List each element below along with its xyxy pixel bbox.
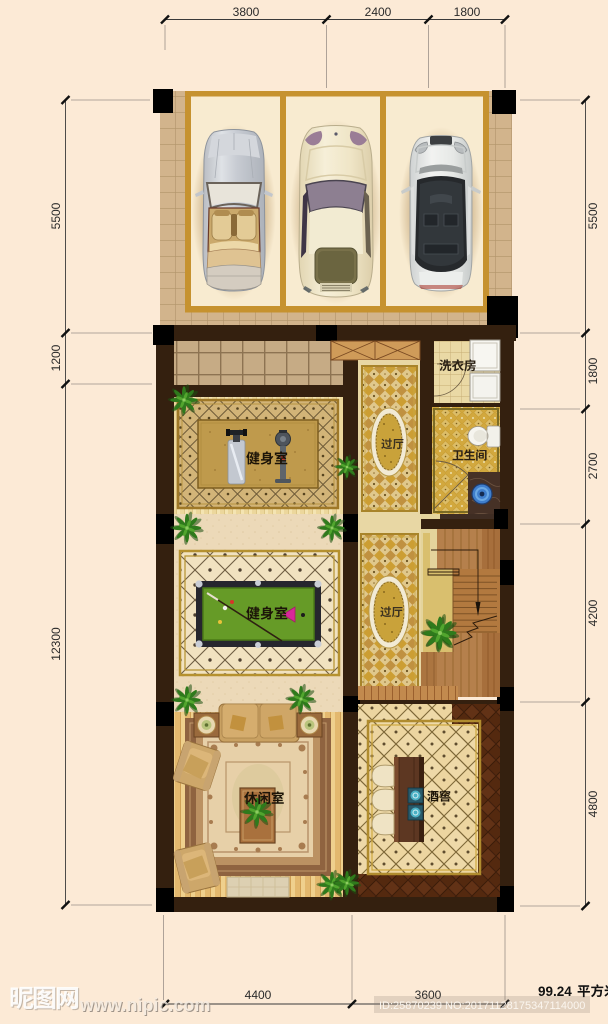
svg-text:5500: 5500 bbox=[49, 202, 63, 229]
svg-text:2700: 2700 bbox=[586, 452, 600, 479]
svg-text:1200: 1200 bbox=[49, 344, 63, 371]
svg-text:99.24: 99.24 bbox=[538, 984, 572, 999]
svg-text:5500: 5500 bbox=[586, 202, 600, 229]
svg-text:ID:25870239 NO:201711281753471: ID:25870239 NO:20171128175347114000 bbox=[379, 1000, 585, 1012]
svg-text:1800: 1800 bbox=[586, 357, 600, 384]
svg-text:4400: 4400 bbox=[245, 988, 272, 1002]
svg-text:3800: 3800 bbox=[233, 5, 260, 19]
svg-text:1800: 1800 bbox=[454, 5, 481, 19]
svg-text:www.nipic.com: www.nipic.com bbox=[79, 995, 210, 1015]
svg-text:2400: 2400 bbox=[365, 5, 392, 19]
svg-text:4800: 4800 bbox=[586, 790, 600, 817]
svg-text:12300: 12300 bbox=[49, 627, 63, 661]
svg-text:4200: 4200 bbox=[586, 599, 600, 626]
